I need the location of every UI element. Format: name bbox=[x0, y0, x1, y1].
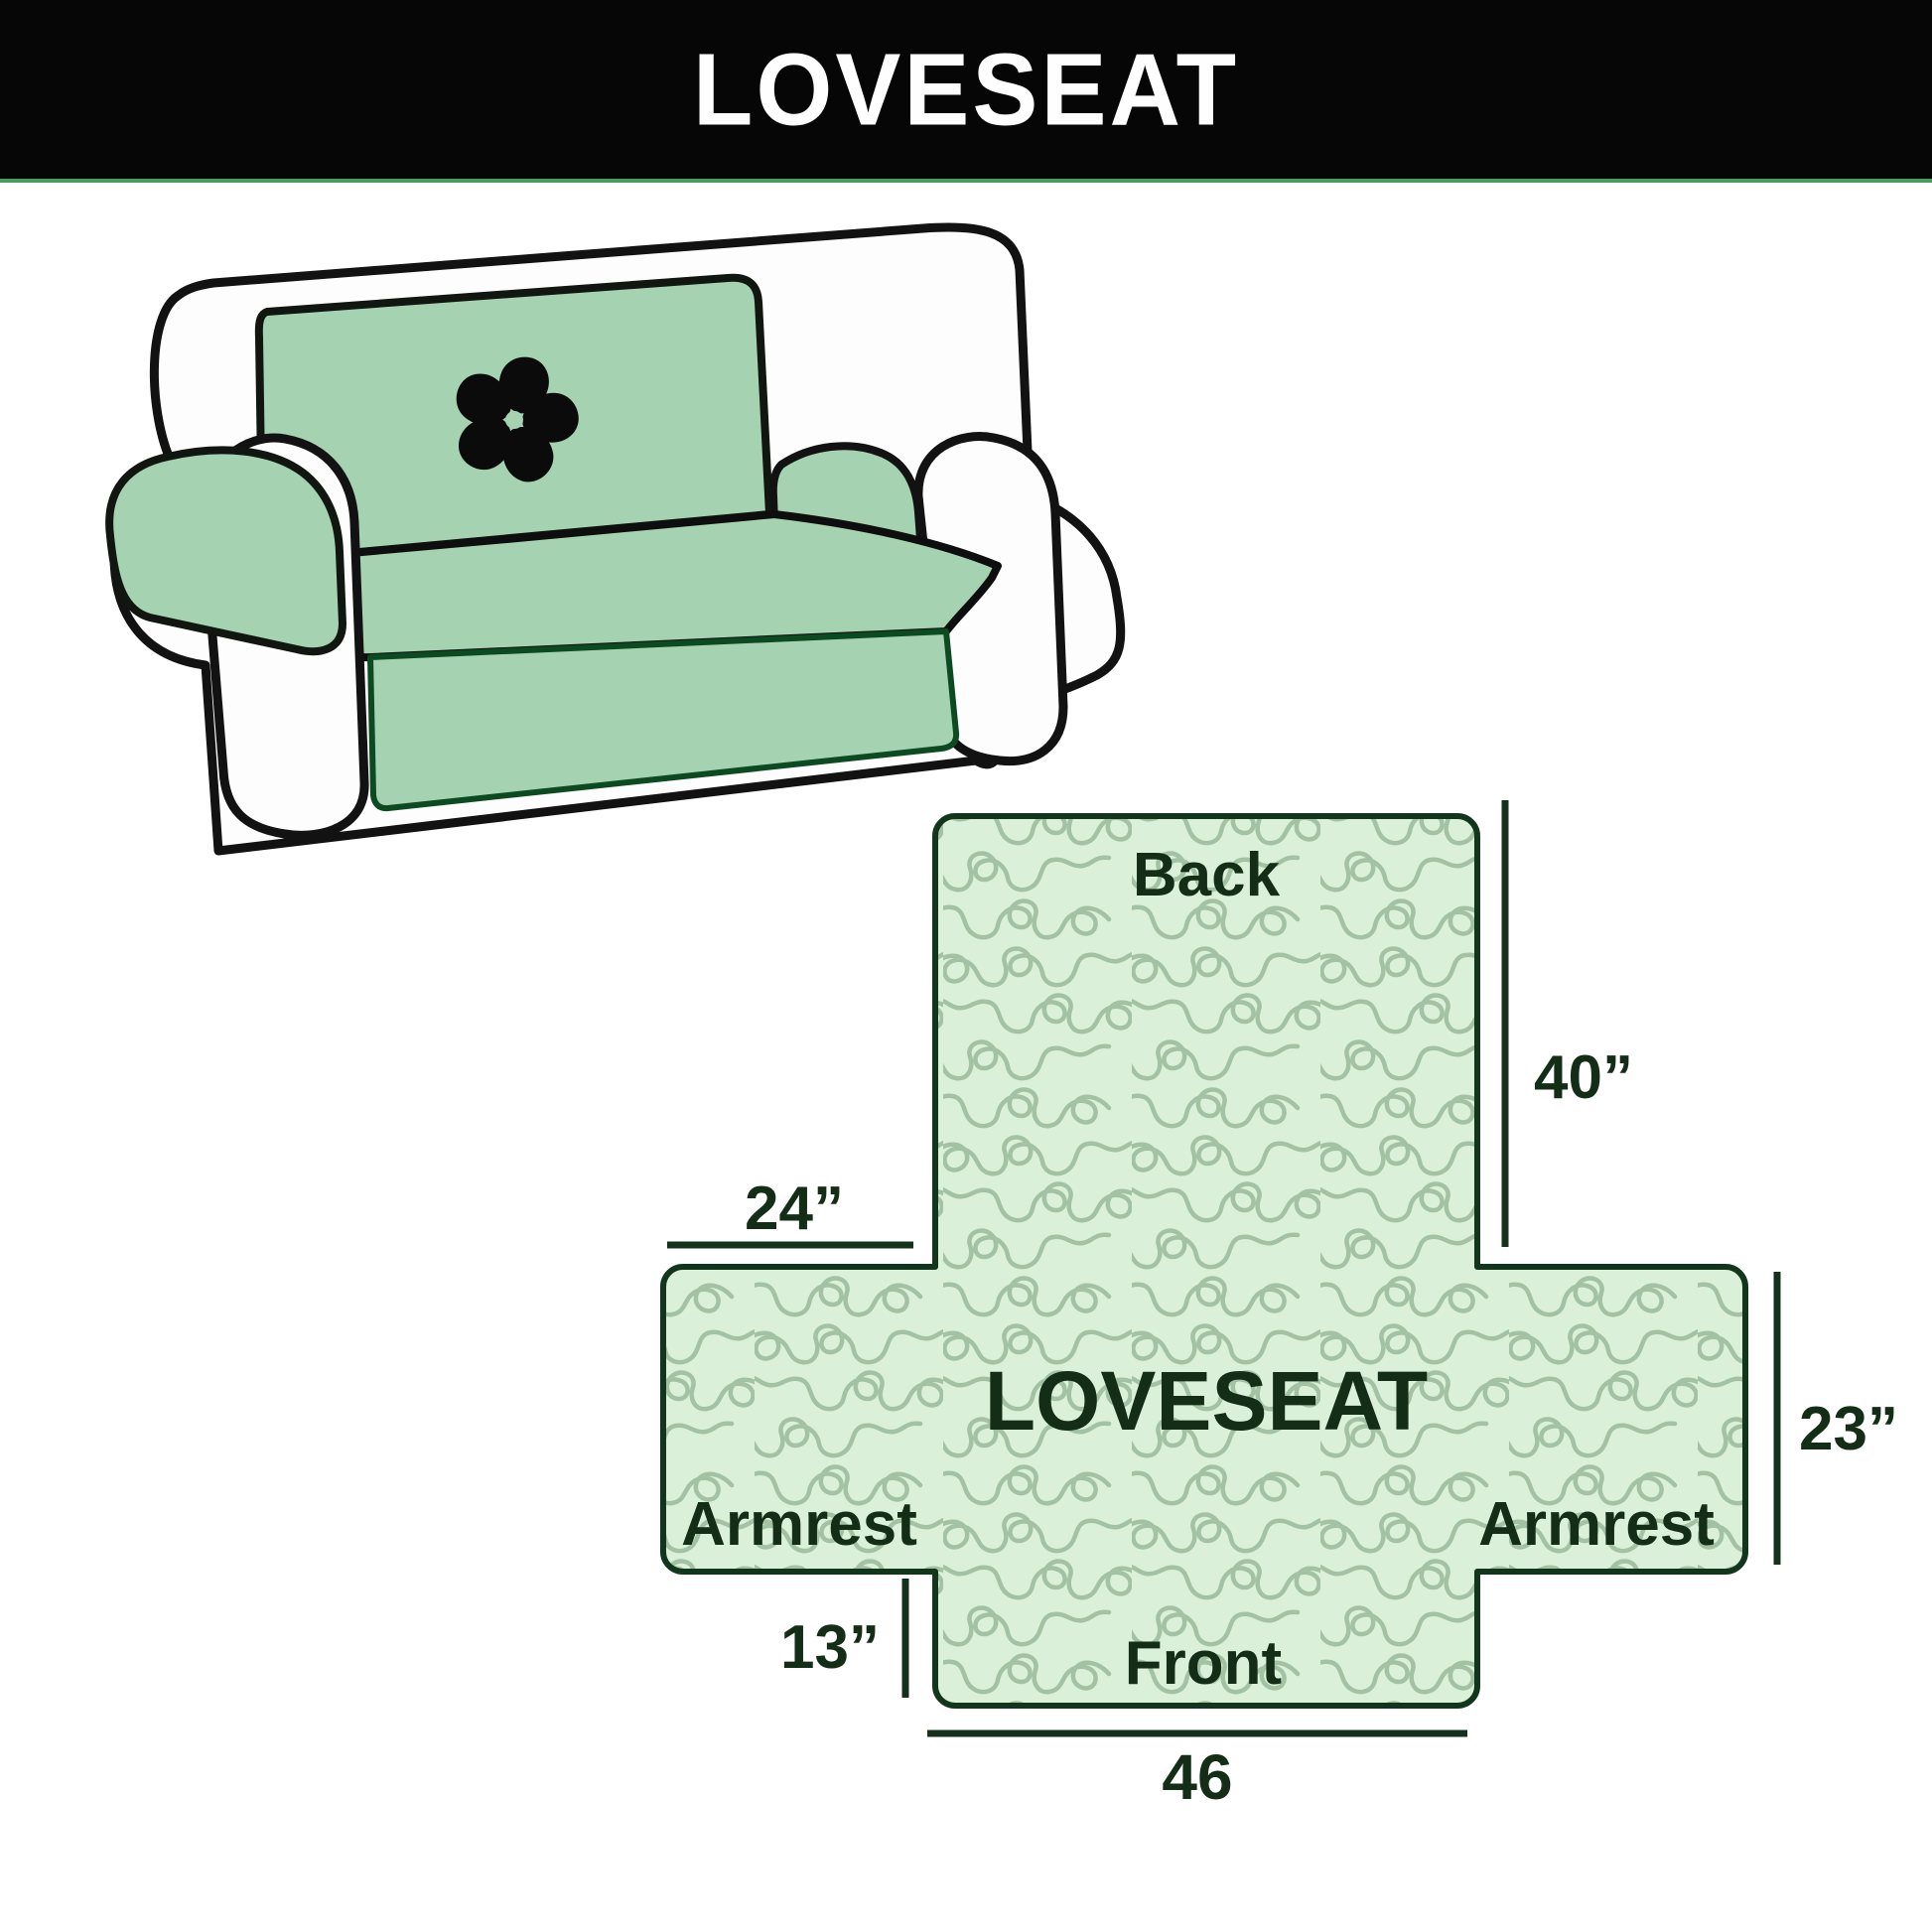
armrest-left-label: Armrest bbox=[681, 1490, 917, 1559]
dim-armrest-side-height: 23” bbox=[1799, 1395, 1898, 1463]
dim-front-flap-height: 13” bbox=[780, 1613, 880, 1682]
dim-back-height: 40” bbox=[1534, 1043, 1633, 1112]
dim-armrest-top-width: 24” bbox=[745, 1174, 844, 1243]
armrest-right-label: Armrest bbox=[1478, 1490, 1715, 1559]
front-label: Front bbox=[1125, 1629, 1282, 1698]
center-label: LOVESEAT bbox=[985, 1354, 1429, 1448]
cover-layout-diagram: Back LOVESEAT Armrest Armrest Front 40” … bbox=[0, 0, 1932, 1932]
back-label: Back bbox=[1133, 841, 1281, 909]
cover-shape bbox=[663, 816, 1745, 1706]
dim-front-width: 46 bbox=[1162, 1741, 1232, 1813]
